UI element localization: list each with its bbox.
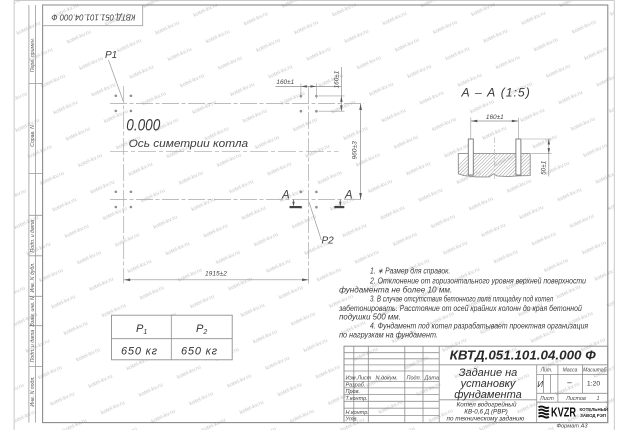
svg-text:N докум.: N докум. bbox=[376, 376, 398, 382]
svg-text:Разраб.: Разраб. bbox=[346, 383, 366, 389]
svg-text:КВТД.051.101.04.000 Ф: КВТД.051.101.04.000 Ф bbox=[51, 12, 135, 21]
svg-text:Т.контр.: Т.контр. bbox=[346, 396, 368, 402]
svg-text:Подп.: Подп. bbox=[407, 376, 422, 382]
svg-text:Утв.: Утв. bbox=[345, 417, 359, 423]
svg-text:по нагрузкам на фундамент.: по нагрузкам на фундамент. bbox=[339, 331, 438, 340]
svg-text:50±1: 50±1 bbox=[540, 160, 547, 175]
svg-text:Инв. N дубл.: Инв. N дубл. bbox=[30, 262, 36, 292]
svg-text:Масштаб: Масштаб bbox=[583, 367, 607, 373]
svg-text:160±1: 160±1 bbox=[276, 79, 294, 86]
svg-text:Котел водогрейный: Котел водогрейный bbox=[457, 400, 517, 408]
svg-text:960±3: 960±3 bbox=[351, 141, 358, 160]
svg-text:Ось симетрии котла: Ось симетрии котла bbox=[129, 138, 249, 150]
svg-text:P1: P1 bbox=[105, 50, 117, 61]
svg-text:Перв. примен.: Перв. примен. bbox=[30, 38, 36, 72]
svg-text:650 кг: 650 кг bbox=[121, 345, 158, 357]
svg-text:Справ. N: Справ. N bbox=[30, 125, 36, 147]
svg-text:Изм.Лист: Изм.Лист bbox=[346, 376, 372, 382]
svg-text:Пров.: Пров. bbox=[346, 389, 361, 395]
svg-text:Подп. и дата: Подп. и дата bbox=[30, 330, 36, 363]
svg-text:1:20: 1:20 bbox=[587, 381, 600, 388]
svg-text:фундамента: фундамента bbox=[454, 389, 522, 401]
svg-text:P2: P2 bbox=[322, 235, 335, 246]
svg-text:КВТД.051.101.04.000 Ф: КВТД.051.101.04.000 Ф bbox=[450, 347, 597, 362]
svg-text:1. ∗ Размер для справок.: 1. ∗ Размер для справок. bbox=[370, 267, 450, 276]
svg-text:KVZR: KVZR bbox=[551, 405, 576, 420]
svg-text:фундамента не более 10 мм.: фундамента не более 10 мм. bbox=[339, 285, 452, 294]
svg-text:Подп. и дата: Подп. и дата bbox=[30, 220, 36, 253]
svg-text:забетонировать. Расстояние от: забетонировать. Расстояние от осей крайн… bbox=[338, 304, 582, 313]
svg-text:Взам. инв. N: Взам. инв. N bbox=[30, 296, 36, 326]
svg-text:Лист: Лист bbox=[539, 396, 554, 402]
svg-text:3. В случае отсутствия бетонно: 3. В случае отсутствия бетонного пола пл… bbox=[370, 295, 554, 304]
svg-text:Дата: Дата bbox=[424, 376, 440, 382]
svg-text:1: 1 bbox=[597, 396, 600, 402]
svg-text:160±1: 160±1 bbox=[486, 114, 504, 121]
svg-text:подушки 500 мм.: подушки 500 мм. bbox=[339, 313, 401, 322]
svg-text:2. Отклонение от горизонтально: 2. Отклонение от горизонтального уровня … bbox=[369, 276, 586, 285]
svg-text:по техническому заданию: по техническому заданию bbox=[446, 415, 524, 423]
svg-text:КВ-0,6 Д (РВР): КВ-0,6 Д (РВР) bbox=[464, 408, 508, 415]
svg-text:А – А (1:5): А – А (1:5) bbox=[461, 85, 531, 99]
svg-text:160±1: 160±1 bbox=[334, 70, 341, 88]
svg-text:Лит.: Лит. bbox=[540, 367, 553, 373]
svg-text:А: А bbox=[344, 190, 353, 202]
svg-text:0.000: 0.000 bbox=[126, 117, 161, 135]
svg-text:А: А bbox=[281, 190, 290, 202]
svg-text:Масса: Масса bbox=[563, 367, 578, 373]
svg-text:Формат А3: Формат А3 bbox=[556, 424, 588, 430]
svg-text:Листов: Листов bbox=[565, 396, 586, 402]
svg-text:–: – bbox=[566, 378, 572, 387]
svg-text:И: И bbox=[537, 380, 543, 389]
svg-text:ЗАВОД РЭП: ЗАВОД РЭП bbox=[580, 413, 606, 418]
svg-text:КОТЕЛЬНЫЙ: КОТЕЛЬНЫЙ bbox=[580, 407, 609, 412]
svg-text:1915±2: 1915±2 bbox=[205, 270, 227, 277]
svg-text:Н.контр.: Н.контр. bbox=[346, 410, 369, 416]
svg-text:650 кг: 650 кг bbox=[181, 345, 218, 357]
svg-text:Инв. N подл.: Инв. N подл. bbox=[30, 376, 36, 406]
svg-text:4. Фундамент под котел разраба: 4. Фундамент под котел разрабатывает про… bbox=[370, 322, 589, 331]
